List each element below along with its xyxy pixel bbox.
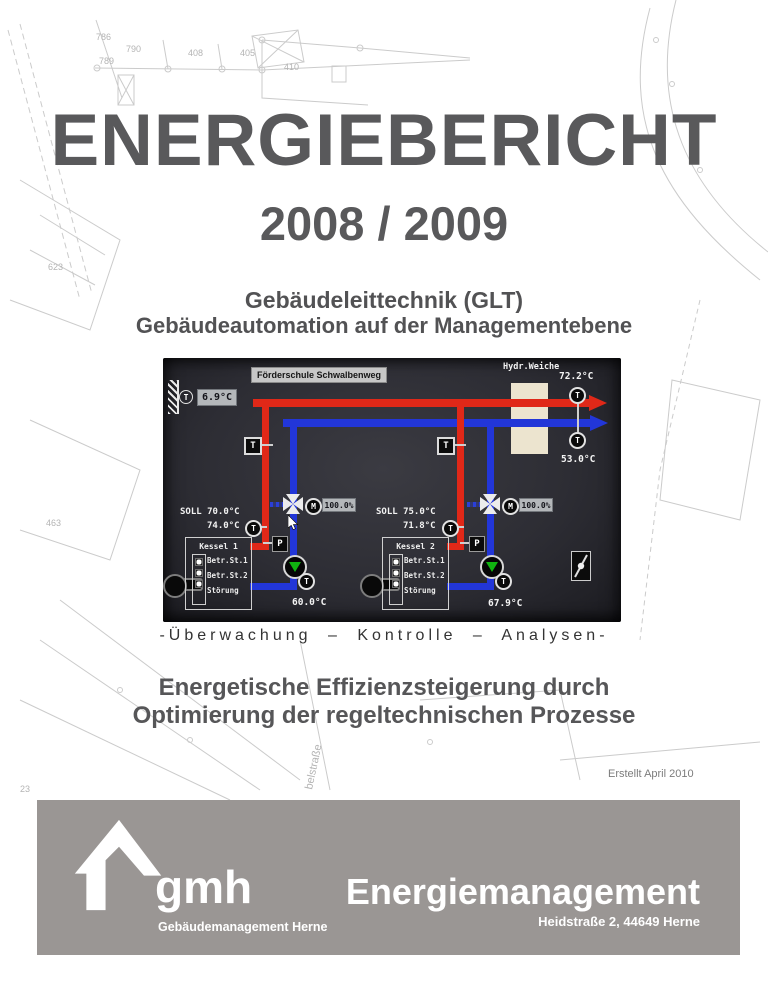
flow-temp-sensor-icon: T — [569, 387, 586, 404]
return-pipe — [283, 419, 590, 427]
boiler1-box: Kessel 1 Betr.St.1 Betr.St.2 Störung — [185, 537, 252, 610]
boiler2-name: Kessel 2 — [383, 542, 448, 551]
valve2-position-display: 100.0% — [519, 498, 553, 512]
outside-temp-sensor-icon: T — [179, 390, 193, 404]
hydr-weiche-label: Hydr.Weiche — [503, 362, 559, 372]
return-pipe-arrow — [590, 415, 608, 431]
boiler1-flow-riser — [262, 407, 269, 550]
boiler2-return-sensor-icon: T — [495, 573, 512, 590]
status-led — [392, 558, 400, 566]
boiler2-pressure-sensor: P — [469, 536, 485, 552]
boiler1-riser-temp-sensor: T — [244, 437, 262, 455]
created-date: Erstellt April 2010 — [608, 768, 694, 780]
mixing-valve-icon — [282, 493, 304, 515]
status-led — [195, 558, 203, 566]
footer-department-title: Energiemanagement — [346, 874, 700, 910]
flow-pipe — [253, 399, 590, 407]
mixing-valve-icon — [479, 493, 501, 515]
flow-pipe-arrow — [589, 395, 607, 411]
gmh-logo-subtitle: Gebäudemanagement Herne — [158, 920, 328, 934]
efficiency-heading-line2: Optimierung der regeltechnischen Prozess… — [0, 703, 768, 729]
subtitle-glt: Gebäudeleittechnik (GLT) — [0, 288, 768, 313]
efficiency-heading-line1: Energetische Effizienzsteigerung durch — [0, 675, 768, 701]
boiler1-name: Kessel 1 — [186, 542, 251, 551]
valve1-position-display: 100.0% — [322, 498, 356, 512]
mouse-cursor-icon — [288, 515, 299, 531]
return-temp-sensor-icon: T — [569, 432, 586, 449]
gmh-logo-text: gmh — [155, 864, 252, 910]
boiler1-return-elbow — [250, 583, 297, 590]
valve1-motor-icon: M — [305, 498, 322, 515]
boiler2-setpoint: SOLL 75.0°C — [376, 507, 436, 517]
boiler1-setpoint: SOLL 70.0°C — [180, 507, 240, 517]
boiler1-actual-sensor-icon: T — [245, 520, 262, 537]
scada-screenshot: Förderschule Schwalbenweg Hydr.Weiche 72… — [163, 358, 621, 622]
boiler2-riser-temp-sensor: T — [437, 437, 455, 455]
footer-address: Heidstraße 2, 44649 Herne — [538, 914, 700, 929]
subtitle-automation: Gebäudeautomation auf der Managementeben… — [0, 314, 768, 338]
gmh-house-arrow-logo — [69, 818, 169, 914]
boiler2-box: Kessel 2 Betr.St.1 Betr.St.2 Störung — [382, 537, 449, 610]
valve2-motor-icon: M — [502, 498, 519, 515]
boiler2-return-elbow — [447, 583, 494, 590]
boiler2-led-label-3: Störung — [404, 586, 436, 595]
boiler1-led-label-3: Störung — [207, 586, 239, 595]
breaker-switch-icon — [571, 551, 591, 581]
boiler1-status-leds — [192, 554, 206, 605]
boiler2-led-label-1: Betr.St.1 — [404, 556, 445, 565]
boiler1-led-label-2: Betr.St.2 — [207, 571, 248, 580]
boiler2-led-label-2: Betr.St.2 — [404, 571, 445, 580]
sensor-lead-line — [577, 400, 579, 434]
outside-temp-display: 6.9°C — [197, 389, 237, 406]
boiler2-return-temp: 67.9°C — [488, 598, 522, 609]
wall-hatch-symbol — [168, 380, 179, 414]
boiler1-flow-elbow — [250, 543, 269, 550]
status-led — [392, 580, 400, 588]
status-led — [195, 569, 203, 577]
boiler2-actual-sensor-icon: T — [442, 520, 459, 537]
status-led — [195, 580, 203, 588]
status-led — [392, 569, 400, 577]
boiler1-actual-temp: 74.0°C — [207, 521, 240, 531]
boiler1-pressure-sensor: P — [272, 536, 288, 552]
boiler2-status-leds — [389, 554, 403, 605]
return-temp-value: 53.0°C — [561, 454, 595, 465]
footer-band: gmh Gebäudemanagement Herne Energiemanag… — [37, 800, 740, 955]
boiler1-return-temp: 60.0°C — [292, 597, 326, 608]
boiler2-actual-temp: 71.8°C — [403, 521, 436, 531]
report-years: 2008 / 2009 — [0, 200, 768, 247]
site-name-label: Förderschule Schwalbenweg — [251, 367, 387, 383]
flow-temp-value: 72.2°C — [559, 371, 593, 382]
boiler1-led-label-1: Betr.St.1 — [207, 556, 248, 565]
boiler2-burner — [360, 574, 384, 598]
report-cover-page: 786 790 789 408 405 410 623 463 23 belst… — [0, 0, 768, 994]
monitoring-caption: -Überwachung – Kontrolle – Analysen- — [0, 627, 768, 645]
boiler1-return-sensor-icon: T — [298, 573, 315, 590]
boiler2-flow-elbow — [447, 543, 464, 550]
report-title: ENERGIEBERICHT — [0, 104, 768, 177]
boiler1-burner — [163, 574, 187, 598]
